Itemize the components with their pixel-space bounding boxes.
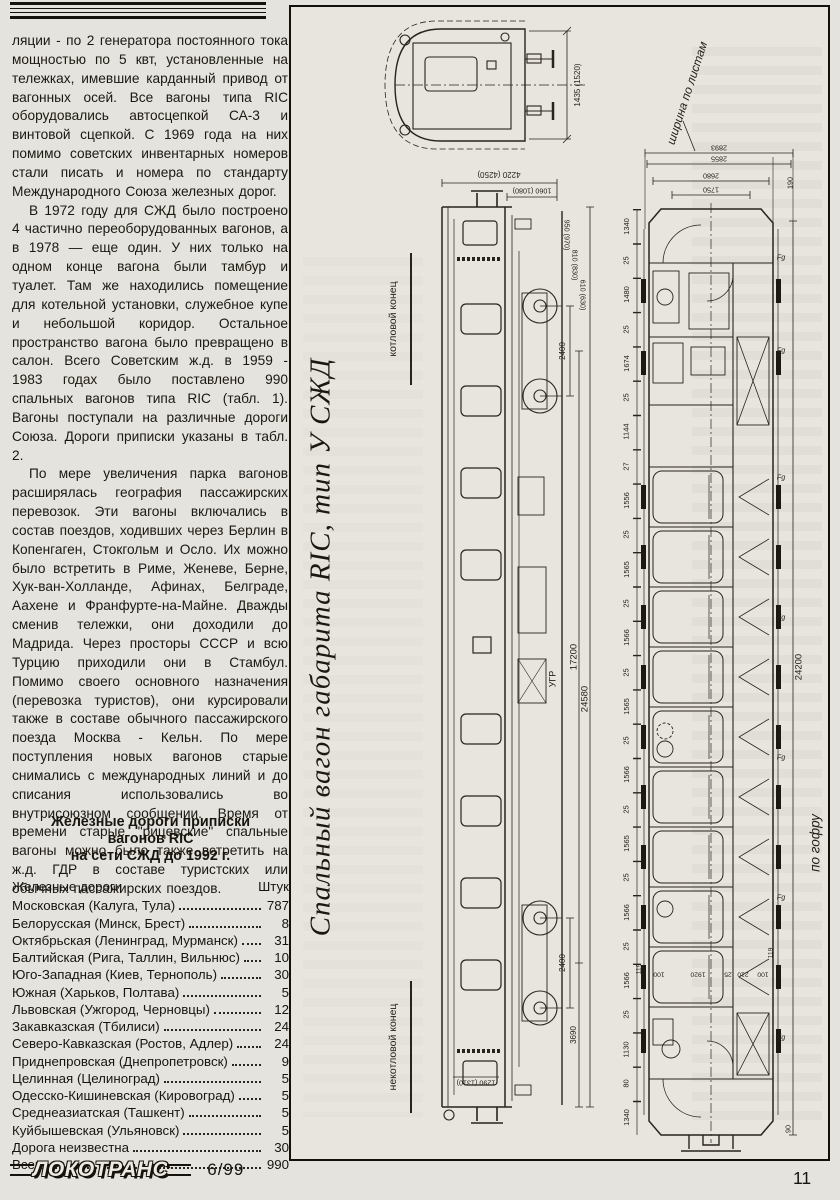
- plan-top-dim: 2680: [703, 172, 719, 179]
- rail-level-label: УГР: [549, 671, 558, 688]
- body-length-dim: 24580: [580, 686, 590, 712]
- dimension-cell: 1556: [618, 483, 634, 517]
- dimension-value: 1340: [622, 1110, 631, 1127]
- plan-top-dim: 1750: [703, 186, 719, 193]
- window-type-label: Fg: [777, 893, 785, 900]
- dimension-value: 25: [622, 256, 631, 264]
- paragraph: В 1972 году для СЖД было построено 4 час…: [12, 202, 288, 466]
- top-rule: [10, 8, 266, 9]
- paragraph: ляции - по 2 генератора постоянного тока…: [12, 32, 288, 202]
- railway-count: 9: [265, 1053, 289, 1070]
- dimension-cell: 25: [618, 518, 634, 552]
- drawing-caption: Спальный вагон габарита RIC, тип У СЖД: [307, 358, 336, 937]
- dot-leader: [189, 1115, 261, 1117]
- plan-dimension-chain: 1340251480251674251144271556251565251566…: [618, 209, 634, 1135]
- railway-name: Закавказская (Тбилиси): [12, 1018, 160, 1035]
- railway-name: Одесско-Кишиневская (Кировоград): [12, 1087, 235, 1104]
- table-row: Львовская (Ужгород, Черновцы) 12: [12, 1001, 289, 1018]
- dimension-cell: 25: [618, 723, 634, 757]
- railway-name: Целинная (Целиноград): [12, 1070, 160, 1087]
- dimension-value: 1566: [622, 904, 631, 921]
- dimension-value: 25: [622, 325, 631, 333]
- top-rule: [10, 12, 266, 13]
- railway-count: 31: [265, 932, 289, 949]
- railway-name: Приднепровская (Днепропетровск): [12, 1053, 228, 1070]
- dot-leader: [183, 1133, 261, 1135]
- railway-count: 787: [265, 897, 289, 914]
- dimension-value: 27: [622, 462, 631, 470]
- magazine-logo: ЛОКОТРАНС: [31, 1158, 170, 1182]
- dimension-cell: 27: [618, 449, 634, 483]
- dot-leader: [189, 926, 261, 928]
- railway-count: 30: [265, 966, 289, 983]
- dimension-cell: 1144: [618, 415, 634, 449]
- window-type-label: Fg: [777, 613, 785, 620]
- window-type-label: Fg: [777, 753, 785, 760]
- railway-name: Куйбышевская (Ульяновск): [12, 1122, 179, 1139]
- dim-90: 90: [784, 1125, 791, 1133]
- table-row: Юго-Западная (Киев, Тернополь) 30: [12, 966, 289, 983]
- railway-count: 10: [265, 949, 289, 966]
- dim-119: 119: [637, 964, 644, 975]
- dimension-value: 1565: [622, 561, 631, 578]
- car-drawing-linework: [291, 7, 827, 1158]
- table-title-line: Железные дороги приписки: [12, 814, 289, 831]
- table-row: Белорусская (Минск, Брест) 8: [12, 915, 289, 932]
- dimension-cell: 1674: [618, 346, 634, 380]
- dimension-value: 1130: [622, 1041, 631, 1057]
- dimension-cell: 25: [618, 861, 634, 895]
- railway-count: 24: [265, 1018, 289, 1035]
- railway-count: 12: [265, 1001, 289, 1018]
- dimension-value: 1480: [622, 286, 631, 303]
- width-over-corrugation-label: по гофру: [808, 814, 822, 872]
- bogie-wheelbase-dim: 2400: [559, 342, 567, 360]
- page-number: 11: [793, 1168, 811, 1189]
- dot-leader: [183, 995, 261, 997]
- dimension-value: 1565: [622, 698, 631, 715]
- table-row: Целинная (Целиноград) 5: [12, 1070, 289, 1087]
- length-over-corrugation-dim: 24200: [794, 654, 804, 680]
- dimension-value: 25: [622, 393, 631, 401]
- plan-cross-dim: 100: [653, 970, 664, 977]
- technical-drawing-box: Спальный вагон габарита RIC, тип У СЖД к…: [289, 5, 830, 1161]
- dimension-cell: 25: [618, 792, 634, 826]
- dimension-value: 25: [622, 531, 631, 539]
- dimension-cell: 80: [618, 1066, 634, 1100]
- window-type-label: Fg: [777, 346, 785, 353]
- railway-name: Белорусская (Минск, Брест): [12, 915, 185, 932]
- dimension-cell: 25: [618, 998, 634, 1032]
- dimension-cell: 25: [618, 380, 634, 414]
- dimension-value: 25: [622, 668, 631, 676]
- roof-width-dim: 4220 (4250): [477, 170, 520, 178]
- dimension-value: 1340: [622, 218, 631, 235]
- table-title-line: на сети СЖД до 1992 г.: [12, 848, 289, 865]
- dot-leader: [244, 960, 261, 962]
- dot-leader: [237, 1046, 261, 1048]
- footer: ЛОКОТРАНС 6/99: [10, 1158, 244, 1182]
- height-dim: 950 (970): [563, 220, 570, 251]
- end-height-dim: 1435 (1520): [574, 63, 582, 106]
- plan-top-dim: 2855: [711, 155, 727, 162]
- bogie-wheelbase-dim: 2400: [559, 954, 567, 972]
- dimension-value: 80: [622, 1079, 631, 1087]
- depot-table: Железные дороги приписки вагонов RIC на …: [12, 814, 289, 1173]
- dimension-value: 1674: [622, 355, 631, 372]
- railway-name: Северо-Кавказская (Ростов, Адлер): [12, 1035, 233, 1052]
- table-row: Северо-Кавказская (Ростов, Адлер) 24: [12, 1035, 289, 1052]
- railway-count: 5: [265, 1104, 289, 1121]
- railway-name: Юго-Западная (Киев, Тернополь): [12, 966, 217, 983]
- issue-number: 6/99: [207, 1160, 244, 1180]
- end-overhang-dim: 3690: [570, 1026, 578, 1044]
- dot-leader: [133, 1150, 261, 1152]
- table-row: Южная (Харьков, Полтава) 5: [12, 984, 289, 1001]
- railway-name: Львовская (Ужгород, Черновцы): [12, 1001, 210, 1018]
- table-title: Железные дороги приписки вагонов RIC на …: [12, 814, 289, 865]
- railway-name: Балтийская (Рига, Таллин, Вильнюс): [12, 949, 240, 966]
- plan-cross-dim: 100: [757, 970, 768, 977]
- top-rule: [10, 2, 266, 5]
- dot-leader: [214, 1012, 261, 1014]
- table-header-name: Железные дороги: [12, 878, 122, 895]
- bogie-centers-dim: 17200: [569, 644, 579, 670]
- window-type-label: Fg: [777, 473, 785, 480]
- table-rows: Московская (Калуга, Тула) 787 Белорусска…: [12, 897, 289, 1173]
- dimension-value: 1566: [622, 767, 631, 784]
- dimension-cell: 1566: [618, 895, 634, 929]
- height-dim: 610 (630): [579, 280, 586, 311]
- dimension-value: 1566: [622, 629, 631, 646]
- dimension-cell: 1130: [618, 1032, 634, 1066]
- dot-leader: [221, 977, 261, 979]
- non-boiler-end-label: некотловой конец: [388, 1004, 399, 1091]
- dimension-cell: 25: [618, 243, 634, 277]
- dimension-cell: 1565: [618, 552, 634, 586]
- railway-count: 5: [265, 1122, 289, 1139]
- table-row: Приднепровская (Днепропетровск) 9: [12, 1053, 289, 1070]
- dimension-cell: 1566: [618, 758, 634, 792]
- dimension-value: 1565: [622, 835, 631, 852]
- railway-count: 30: [265, 1139, 289, 1156]
- dimension-value: 25: [622, 874, 631, 882]
- table-row: Одесско-Кишиневская (Кировоград) 5: [12, 1087, 289, 1104]
- plan-top-dim: 2893: [711, 144, 727, 151]
- railway-count: 24: [265, 1035, 289, 1052]
- railway-count: 5: [265, 1087, 289, 1104]
- logo-right-bar: [167, 1164, 191, 1176]
- boiler-end-label: котловой конец: [388, 281, 399, 356]
- window-type-label: Fg: [777, 1033, 785, 1040]
- dot-leader: [179, 908, 261, 910]
- magazine-page: ляции - по 2 генератора постоянного тока…: [0, 0, 840, 1200]
- table-row: Дорога неизвестна 30: [12, 1139, 289, 1156]
- dim-119: 119: [769, 948, 776, 959]
- dot-leader: [242, 943, 261, 945]
- dimension-cell: 1340: [618, 209, 634, 243]
- dot-leader: [164, 1081, 261, 1083]
- dim-190: 190: [786, 177, 793, 189]
- railway-count: 8: [265, 915, 289, 932]
- table-header-row: Железные дороги Штук: [12, 878, 289, 895]
- dimension-value: 1556: [622, 492, 631, 509]
- plan-cross-dim: 25: [724, 970, 732, 977]
- dimension-cell: 1566: [618, 621, 634, 655]
- dot-leader: [164, 1029, 261, 1031]
- dimension-cell: 1340: [618, 1101, 634, 1135]
- dimension-cell: 25: [618, 655, 634, 689]
- dimension-value: 1566: [622, 972, 631, 989]
- railway-name: Дорога неизвестна: [12, 1139, 129, 1156]
- roof-width2-dim: 1060 (1080): [513, 187, 552, 194]
- top-rule: [10, 16, 266, 19]
- dimension-cell: 25: [618, 929, 634, 963]
- railway-count: 5: [265, 984, 289, 1001]
- dimension-cell: 1480: [618, 278, 634, 312]
- dot-leader: [232, 1064, 261, 1066]
- table-row: Среднеазиатская (Ташкент) 5: [12, 1104, 289, 1121]
- table-row: Московская (Калуга, Тула) 787: [12, 897, 289, 914]
- table-row: Балтийская (Рига, Таллин, Вильнюс) 10: [12, 949, 289, 966]
- table-header-count: Штук: [258, 878, 289, 895]
- plan-cross-dim: 1920: [690, 970, 705, 977]
- dimension-cell: 1565: [618, 826, 634, 860]
- dot-leader: [239, 1098, 261, 1100]
- railway-name: Южная (Харьков, Полтава): [12, 984, 179, 1001]
- dimension-value: 25: [622, 736, 631, 744]
- railway-count: 5: [265, 1070, 289, 1087]
- height-dim: 810 (830): [571, 250, 578, 281]
- table-row: Куйбышевская (Ульяновск) 5: [12, 1122, 289, 1139]
- table-row: Октябрьская (Ленинград, Мурманск) 31: [12, 932, 289, 949]
- dimension-value: 25: [622, 942, 631, 950]
- railway-name: Московская (Калуга, Тула): [12, 897, 175, 914]
- article-text-column: ляции - по 2 генератора постоянного тока…: [12, 32, 288, 899]
- table-row: Закавказская (Тбилиси) 24: [12, 1018, 289, 1035]
- dimension-value: 1144: [622, 424, 631, 440]
- dimension-cell: 25: [618, 312, 634, 346]
- dimension-value: 25: [622, 805, 631, 813]
- dimension-cell: 25: [618, 586, 634, 620]
- railway-name: Среднеазиатская (Ташкент): [12, 1104, 185, 1121]
- dimension-cell: 1566: [618, 964, 634, 998]
- dimension-value: 25: [622, 1011, 631, 1019]
- dimension-cell: 1565: [618, 689, 634, 723]
- window-type-label: Fg: [777, 253, 785, 260]
- plan-cross-dim: 210: [737, 970, 748, 977]
- table-title-line: вагонов RIC: [12, 831, 289, 848]
- railway-count: 990: [265, 1156, 289, 1173]
- dimension-value: 25: [622, 599, 631, 607]
- railway-name: Октябрьская (Ленинград, Мурманск): [12, 932, 238, 949]
- buffer-height-dim: 1290 (1310): [457, 1079, 496, 1086]
